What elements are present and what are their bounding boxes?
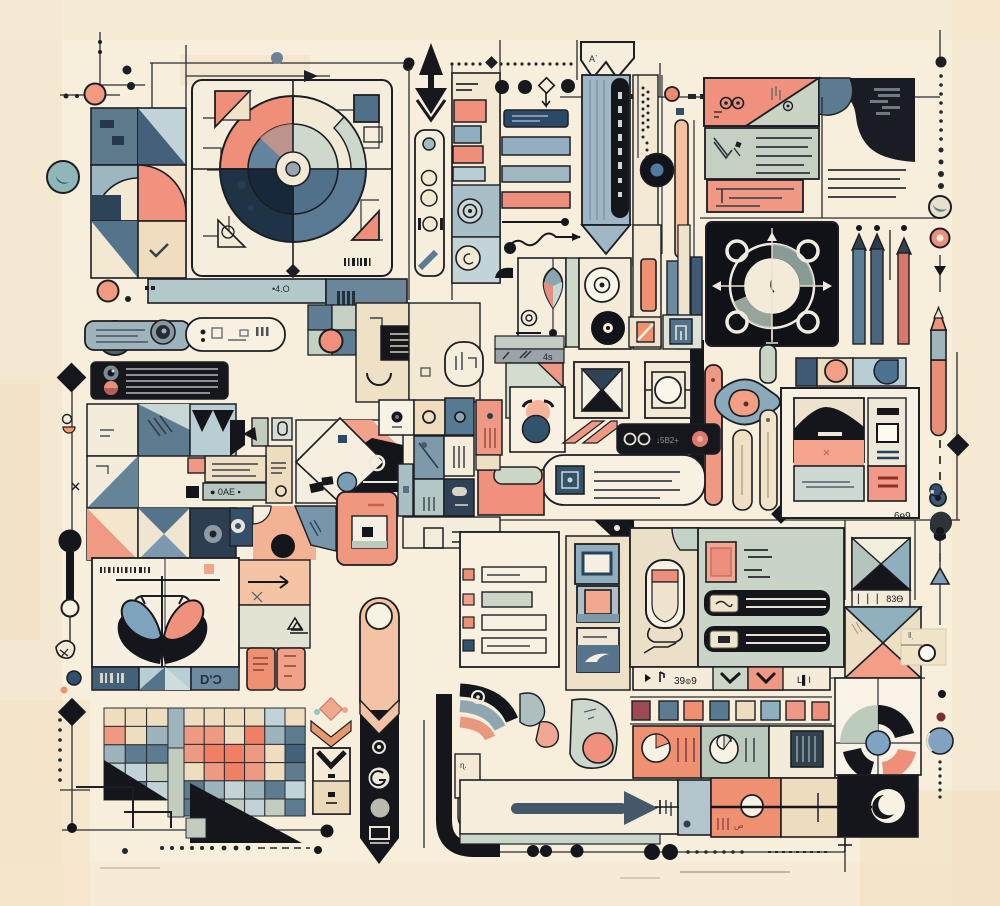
svg-text:39๏9: 39๏9: [674, 676, 697, 687]
svg-text:DʹƆ: DʹƆ: [200, 672, 222, 687]
svg-text:↓5Β2+: ↓5Β2+: [656, 436, 679, 445]
svg-text:■: ■: [930, 489, 934, 496]
svg-text:•4.O: •4.O: [272, 284, 290, 294]
svg-text:ص: ص: [734, 821, 744, 830]
svg-text:L▌I: L▌I: [797, 674, 811, 686]
svg-text:▏ ▏ ▏ 83Ɵ: ▏ ▏ ▏ 83Ɵ: [857, 593, 903, 605]
svg-text:‖ˌ: ‖ˌ: [908, 631, 914, 640]
svg-text:6ө9: 6ө9: [894, 511, 911, 522]
svg-text:4s: 4s: [543, 352, 553, 362]
svg-text:● 0AE ▪: ● 0AE ▪: [210, 487, 241, 497]
svg-text:Aˋ: Aˋ: [589, 54, 598, 64]
svg-text:ɳ.: ɳ.: [460, 761, 467, 770]
